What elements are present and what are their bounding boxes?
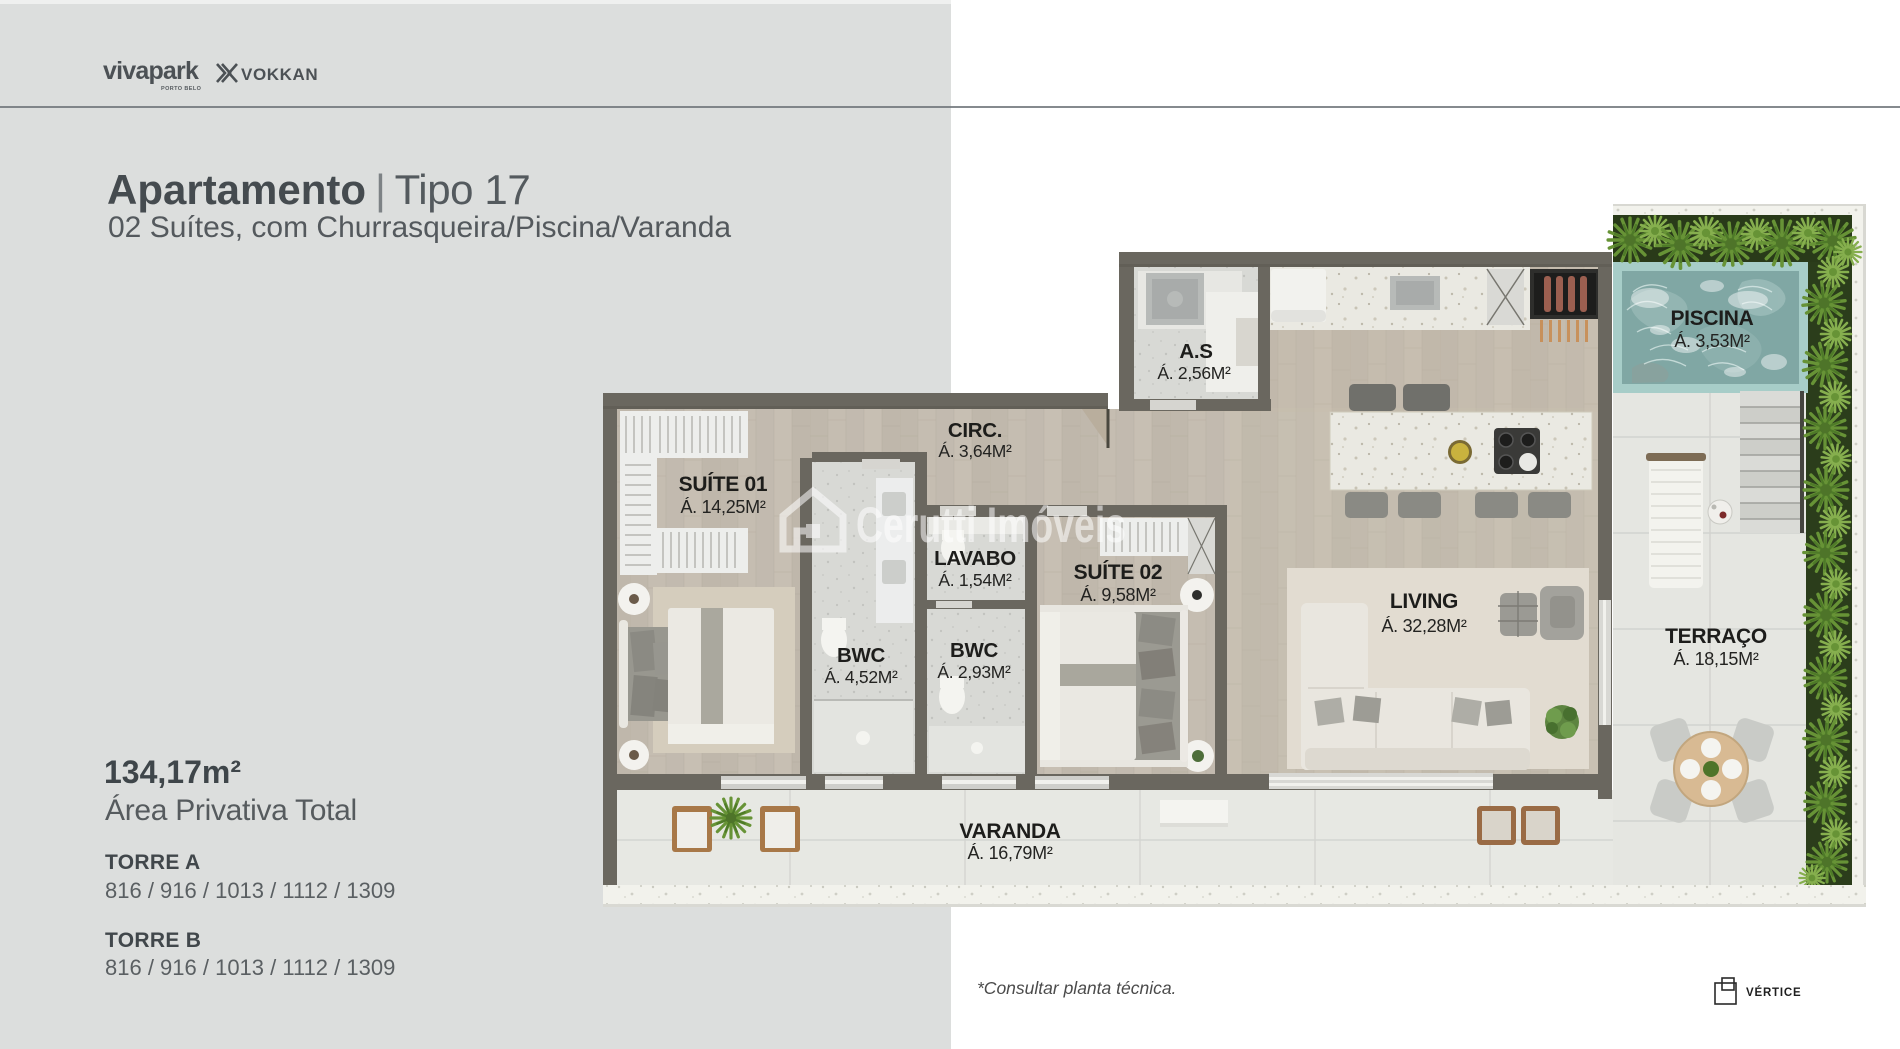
svg-text:Á. 9,58M²: Á. 9,58M² — [1080, 585, 1156, 605]
svg-text:VARANDA: VARANDA — [959, 820, 1060, 843]
svg-text:Á. 2,93M²: Á. 2,93M² — [937, 662, 1011, 682]
svg-text:Á. 18,15M²: Á. 18,15M² — [1673, 649, 1758, 669]
svg-text:SUÍTE 01: SUÍTE 01 — [679, 473, 768, 496]
svg-text:A.S: A.S — [1179, 340, 1212, 363]
svg-text:Á. 4,52M²: Á. 4,52M² — [824, 667, 898, 687]
svg-text:Á. 32,28M²: Á. 32,28M² — [1381, 616, 1466, 636]
svg-text:Á. 2,56M²: Á. 2,56M² — [1157, 363, 1231, 383]
svg-text:Á. 1,54M²: Á. 1,54M² — [938, 570, 1012, 590]
svg-text:BWC: BWC — [950, 639, 999, 662]
svg-text:Á. 14,25M²: Á. 14,25M² — [680, 497, 765, 517]
svg-text:Cerutti Imóveis: Cerutti Imóveis — [856, 497, 1126, 553]
svg-text:Á. 3,64M²: Á. 3,64M² — [938, 441, 1012, 461]
svg-text:PISCINA: PISCINA — [1670, 307, 1753, 330]
svg-text:LIVING: LIVING — [1390, 590, 1458, 613]
svg-text:Á. 16,79M²: Á. 16,79M² — [967, 843, 1052, 863]
svg-text:CIRC.: CIRC. — [948, 419, 1002, 442]
svg-text:Á. 3,53M²: Á. 3,53M² — [1674, 331, 1750, 351]
svg-text:SUÍTE 02: SUÍTE 02 — [1074, 561, 1163, 584]
svg-text:BWC: BWC — [837, 644, 886, 667]
svg-text:TERRAÇO: TERRAÇO — [1665, 625, 1767, 648]
